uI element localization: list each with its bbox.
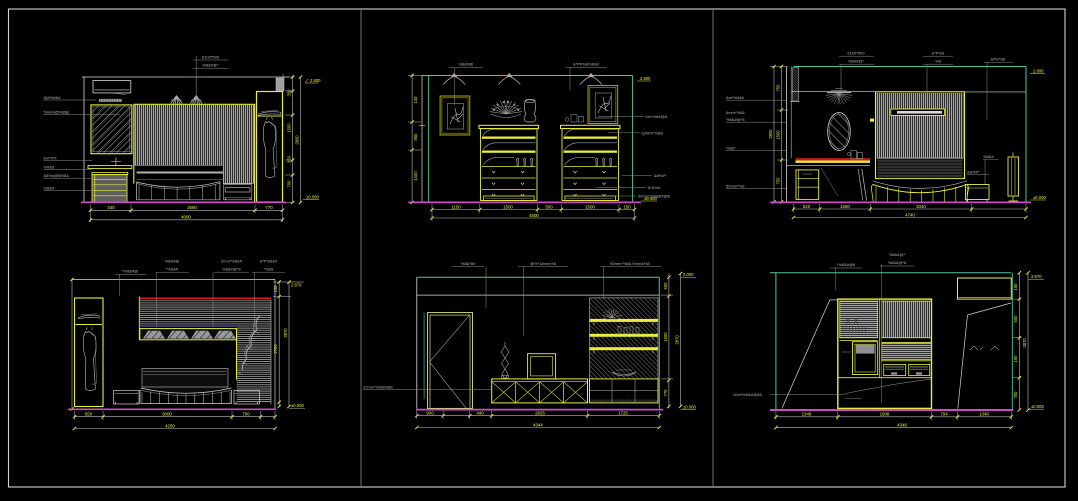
svg-text:2870: 2870 (674, 335, 679, 345)
svg-text:150: 150 (1013, 355, 1018, 363)
svg-text:2.870: 2.870 (291, 283, 302, 288)
svg-text:2870: 2870 (283, 328, 288, 338)
svg-text:50mm*%8& 0mm&%8: 50mm*%8& 0mm&%8 (610, 261, 650, 266)
svg-text:1650: 1650 (840, 204, 850, 209)
svg-text:440: 440 (476, 411, 484, 416)
svg-text:900: 900 (426, 411, 434, 416)
svg-text:%8&#@*8: %8&#@*8 (222, 267, 241, 272)
svg-text:&8%#*: &8%#* (967, 170, 980, 175)
svg-text:±0.000: ±0.000 (644, 196, 657, 201)
svg-text:2800: 2800 (768, 129, 773, 139)
svg-text:1500: 1500 (503, 204, 513, 209)
svg-text:3000: 3000 (162, 412, 172, 417)
svg-text:4000: 4000 (181, 215, 191, 220)
svg-text:6mm*%8&: 6mm*%8& (726, 110, 745, 115)
svg-text:700: 700 (286, 180, 291, 188)
svg-text:2mm*%8&#: 2mm*%8&# (221, 259, 243, 264)
svg-text:2.800: 2.800 (640, 76, 651, 81)
svg-text:%8&#@*: %8&#@* (889, 252, 906, 257)
svg-text:&*P%8&#: &*P%8&# (260, 259, 278, 264)
svg-text:750: 750 (775, 177, 780, 185)
svg-text:±0.000: ±0.000 (1031, 404, 1044, 409)
svg-text:2.800: 2.800 (310, 78, 321, 83)
svg-text:2870: 2870 (1022, 338, 1027, 348)
svg-text:2.870: 2.870 (1031, 274, 1042, 279)
svg-text:2560: 2560 (187, 205, 197, 210)
svg-text:5mm#@%8$&: 5mm#@%8$& (44, 110, 70, 115)
svg-text:3.000: 3.000 (683, 272, 694, 277)
svg-text:750: 750 (1013, 391, 1018, 399)
svg-text:4344: 4344 (533, 422, 543, 427)
svg-text:1500: 1500 (286, 123, 291, 133)
svg-text:350: 350 (286, 89, 291, 97)
svg-text:&8%#*: &8%#* (654, 173, 667, 178)
svg-text:8*&%#: 8*&%# (648, 185, 661, 190)
svg-text:2750: 2750 (273, 344, 278, 354)
svg-text:4250: 4250 (165, 423, 175, 428)
svg-text:750: 750 (775, 84, 780, 92)
svg-text:1500: 1500 (775, 130, 780, 140)
svg-text:@#%8&#: @#%8&# (44, 95, 62, 100)
svg-text:150: 150 (1013, 283, 1018, 291)
svg-text:700: 700 (242, 412, 250, 417)
svg-text:%8&#: %8&# (983, 154, 994, 159)
svg-text:500: 500 (545, 204, 553, 209)
svg-text:6100*500: 6100*500 (202, 55, 220, 60)
svg-text:850: 850 (413, 133, 418, 141)
svg-text:150: 150 (623, 204, 631, 209)
svg-text:1150: 1150 (451, 204, 461, 209)
svg-text:&*P%8: &*P%8 (932, 51, 945, 56)
svg-text:±0.000: ±0.000 (683, 405, 696, 410)
svg-text:4500: 4500 (529, 213, 539, 218)
svg-text:1348: 1348 (802, 412, 812, 417)
svg-text:22mm*%8&#@8: 22mm*%8&#@8 (363, 385, 393, 390)
svg-text:140: 140 (413, 96, 418, 104)
svg-text:±0.000: ±0.000 (291, 403, 304, 408)
svg-text:1725: 1725 (618, 411, 628, 416)
svg-text:8m*#%: 8m*#% (44, 156, 57, 161)
svg-text:&*PPG&%8&#: &*PPG&%8&# (573, 61, 600, 66)
svg-text:%8&*8#: %8&*8# (461, 261, 476, 266)
svg-text:&8%#@$%8&: &8%#@$%8& (44, 173, 70, 178)
svg-text:%8&*: %8&* (726, 146, 736, 151)
svg-text:%8&#@*: %8&#@* (202, 63, 219, 68)
svg-text:@%*18mm%8: @%*18mm%8 (530, 261, 557, 266)
svg-text:*%8&#: *%8&# (166, 267, 179, 272)
svg-text:*%8&: *%8& (263, 267, 273, 272)
svg-text:520: 520 (803, 204, 811, 209)
svg-text:%8&#-: %8&#- (44, 185, 57, 190)
svg-text:*%8&#@8: *%8&#@8 (837, 262, 856, 267)
svg-text:1500: 1500 (663, 332, 668, 342)
svg-text:6100*500: 6100*500 (847, 51, 865, 56)
svg-text:350: 350 (286, 155, 291, 163)
svg-text:704: 704 (940, 412, 948, 417)
svg-text:770: 770 (265, 205, 273, 210)
svg-text:150: 150 (273, 285, 278, 293)
svg-text:600: 600 (663, 282, 668, 290)
svg-text:2.800: 2.800 (1033, 69, 1044, 74)
svg-text:Am*%8&#: Am*%8&# (726, 95, 745, 100)
svg-text:4740: 4740 (905, 212, 915, 217)
svg-text:3340: 3340 (916, 204, 926, 209)
svg-text:1348: 1348 (979, 412, 989, 417)
svg-text:±0.000: ±0.000 (1033, 195, 1046, 200)
svg-text:Q#&%*%8&: Q#&%*%8& (642, 130, 664, 135)
svg-text:%#&8: %#&8 (44, 164, 55, 169)
svg-text:%8&#@: %8&#@ (459, 61, 474, 66)
svg-text:2800: 2800 (294, 135, 299, 145)
svg-text:%8: %8 (935, 59, 942, 64)
svg-text:2825: 2825 (535, 411, 545, 416)
svg-text:%8&#@*: %8&#@* (848, 59, 865, 64)
svg-text:&#%*8&: &#%*8& (991, 57, 1006, 62)
svg-text:550: 550 (85, 412, 93, 417)
svg-text:±0.000: ±0.000 (306, 195, 319, 200)
svg-text:10m*%8&#@8&: 10m*%8&#@8& (733, 392, 762, 397)
svg-text:1400: 1400 (413, 171, 418, 181)
svg-text:%8&#@: %8&#@ (165, 259, 180, 264)
svg-text:770: 770 (663, 389, 668, 397)
svg-text:*%8&#@: *%8&#@ (122, 269, 138, 274)
svg-text:1500: 1500 (585, 204, 595, 209)
svg-text:340: 340 (107, 205, 115, 210)
svg-text:6m*%8#@&: 6m*%8#@& (646, 114, 668, 119)
svg-text:%8&#@*8: %8&#@*8 (726, 117, 745, 122)
svg-text:%8&#@*8: %8&#@*8 (888, 260, 907, 265)
svg-text:1908: 1908 (880, 412, 890, 417)
svg-text:600: 600 (1013, 315, 1018, 323)
svg-text:4348: 4348 (897, 423, 907, 428)
svg-text:50mm*%8: 50mm*%8 (726, 184, 745, 189)
